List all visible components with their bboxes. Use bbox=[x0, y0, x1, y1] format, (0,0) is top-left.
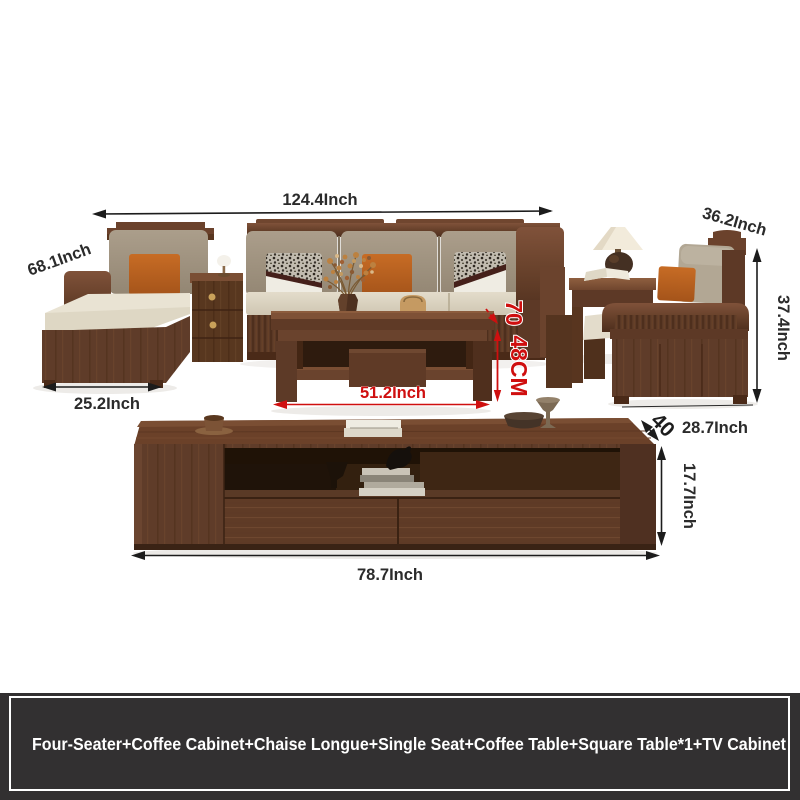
svg-text:48CM: 48CM bbox=[506, 335, 532, 396]
svg-text:51.2Inch: 51.2Inch bbox=[360, 384, 426, 402]
svg-text:28.7Inch: 28.7Inch bbox=[682, 419, 748, 437]
svg-text:25.2Inch: 25.2Inch bbox=[74, 395, 140, 413]
svg-text:78.7Inch: 78.7Inch bbox=[357, 566, 423, 584]
svg-text:124.4Inch: 124.4Inch bbox=[282, 191, 357, 209]
svg-text:Four-Seater+Coffee Cabinet+Cha: Four-Seater+Coffee Cabinet+Chaise Longue… bbox=[32, 734, 786, 754]
svg-text:70: 70 bbox=[501, 300, 527, 326]
svg-text:37.4Inch: 37.4Inch bbox=[774, 295, 792, 361]
svg-text:17.7Inch: 17.7Inch bbox=[680, 463, 698, 529]
